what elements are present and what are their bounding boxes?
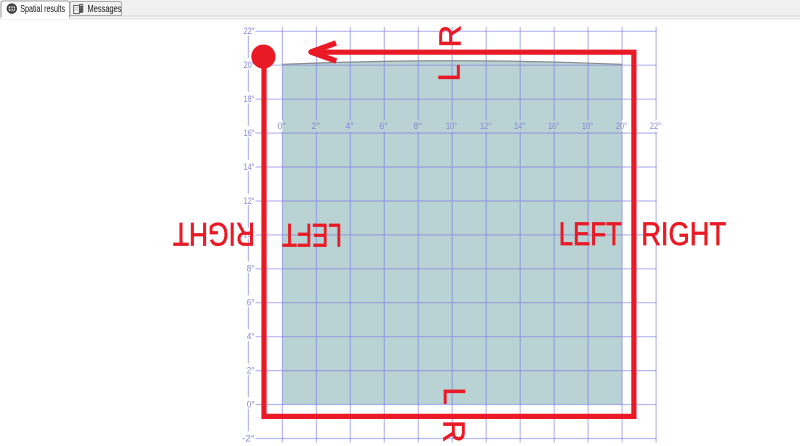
svg-text:16°: 16°	[548, 121, 559, 132]
svg-text:18°: 18°	[244, 94, 255, 105]
svg-text:22°: 22°	[650, 121, 661, 132]
svg-text:RIGHT: RIGHT	[641, 216, 726, 252]
svg-text:0°: 0°	[247, 399, 255, 410]
svg-text:4°: 4°	[247, 332, 255, 343]
svg-text:0°: 0°	[278, 121, 287, 132]
svg-text:Spatial results: Spatial results	[20, 4, 65, 15]
svg-text:2°: 2°	[312, 121, 321, 132]
svg-text:R: R	[437, 420, 472, 442]
svg-text:LEFT: LEFT	[559, 216, 622, 252]
svg-text:8°: 8°	[413, 121, 422, 132]
svg-text:20°: 20°	[616, 121, 627, 132]
svg-text:RIGHT: RIGHT	[173, 216, 255, 252]
svg-text:16°: 16°	[244, 128, 255, 139]
svg-text:L: L	[432, 64, 467, 81]
svg-text:12°: 12°	[480, 121, 491, 132]
svg-text:12°: 12°	[244, 196, 255, 207]
svg-text:2°: 2°	[247, 365, 255, 376]
svg-text:18°: 18°	[582, 121, 593, 132]
svg-text:R: R	[432, 25, 467, 47]
svg-text:22°: 22°	[244, 26, 255, 37]
svg-text:-2°: -2°	[242, 433, 255, 444]
svg-text:14°: 14°	[514, 121, 525, 132]
svg-text:4°: 4°	[345, 121, 354, 132]
svg-text:8°: 8°	[247, 264, 255, 275]
svg-text:6°: 6°	[379, 121, 388, 132]
svg-text:6°: 6°	[247, 298, 255, 309]
svg-text:14°: 14°	[244, 162, 255, 173]
svg-text:Messages: Messages	[88, 4, 122, 15]
svg-text:L: L	[437, 387, 472, 404]
svg-text:10°: 10°	[446, 121, 457, 132]
svg-text:LEFT: LEFT	[282, 217, 342, 253]
